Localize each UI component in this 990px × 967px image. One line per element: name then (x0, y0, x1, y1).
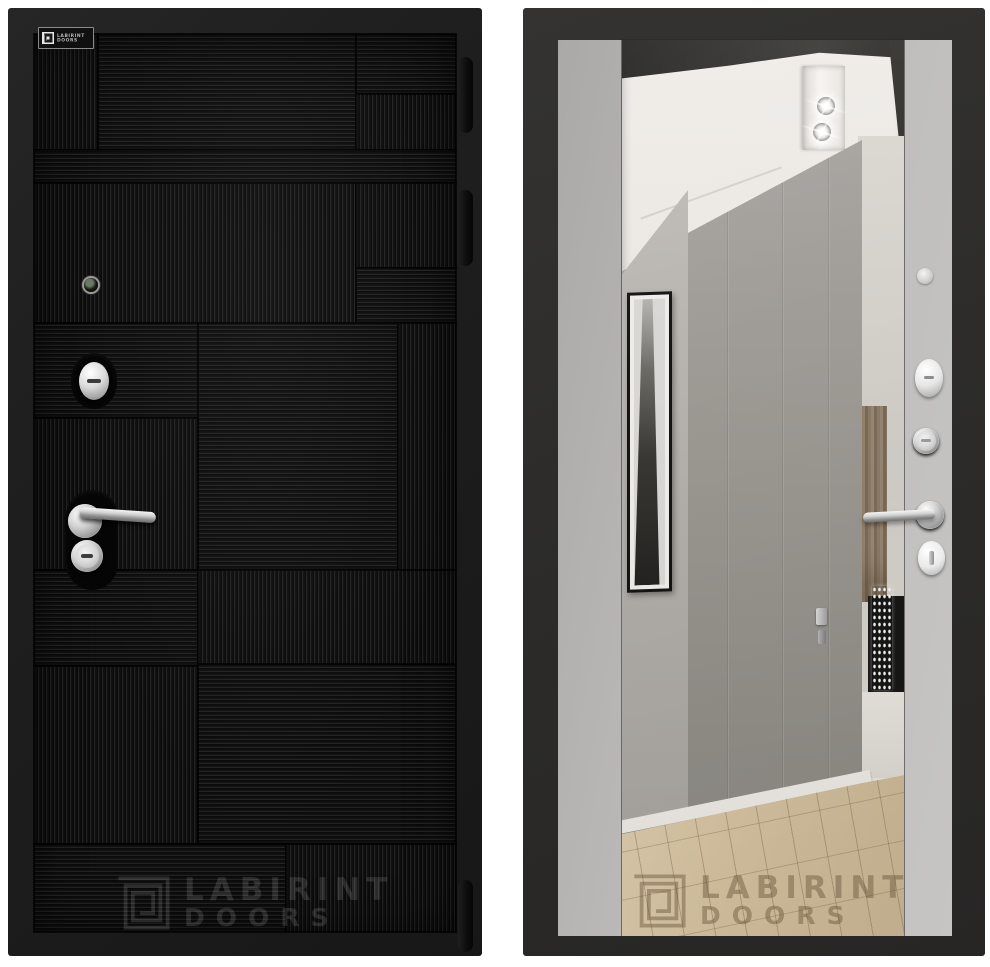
brand-maze-icon (42, 32, 54, 44)
texture-block (356, 183, 456, 268)
keyhole-slot (87, 379, 101, 383)
spotlight (813, 123, 831, 141)
reflection-framed-picture (627, 291, 672, 593)
texture-block (34, 666, 198, 844)
product-photo: LABIRINTDOORS LABIRINT DOORS (0, 0, 990, 967)
texture-block (34, 34, 98, 150)
texture-block (34, 570, 198, 666)
texture-block (34, 150, 456, 183)
oval-escutcheon-back (915, 359, 943, 397)
brand-badge: LABIRINTDOORS (38, 27, 94, 49)
texture-block (198, 570, 456, 664)
texture-block (34, 183, 356, 323)
hinge-cover-middle (458, 190, 473, 266)
thumbturn-back (918, 541, 945, 575)
reflection-curtain (862, 406, 887, 602)
door-front-black: LABIRINTDOORS LABIRINT DOORS (8, 8, 482, 956)
reflection-door-latch (818, 630, 826, 644)
keyhole-slot (81, 554, 93, 558)
texture-block (34, 844, 286, 932)
mirror: LABIRINT DOORS (622, 40, 904, 936)
door-back-mirror: LABIRINT DOORS (523, 8, 985, 956)
peephole (84, 278, 98, 292)
hinge-cover-bottom (458, 880, 473, 952)
upper-lock-escutcheon (79, 362, 109, 400)
reflection-far-floor (858, 692, 904, 778)
lock-cylinder-front (71, 540, 103, 572)
texture-block (198, 664, 456, 844)
texture-block (356, 268, 456, 323)
brand-badge-text: LABIRINTDOORS (57, 34, 85, 43)
reflection-ceiling-soffit (622, 40, 904, 104)
texture-block (198, 323, 398, 570)
texture-block (398, 323, 456, 570)
texture-block (356, 94, 456, 150)
texture-block (98, 34, 356, 150)
door-viewer-cap (917, 268, 933, 284)
hinge-cover-top (458, 57, 473, 133)
upper-lock-recess (71, 353, 117, 409)
door-front-texture (34, 34, 456, 932)
cylinder-back (913, 428, 939, 454)
spotlight (817, 97, 835, 115)
texture-block (286, 844, 456, 932)
reflection-door-latch (816, 608, 827, 625)
texture-block (356, 34, 456, 94)
reflection-crystal-lamp (872, 586, 892, 690)
door-back-panel: LABIRINT DOORS (558, 40, 952, 936)
